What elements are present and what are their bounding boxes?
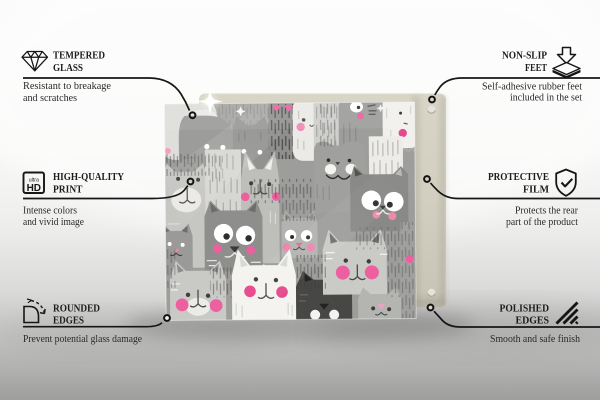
svg-text:Smooth and safe finish: Smooth and safe finish	[490, 334, 580, 345]
svg-text:Protects the rear: Protects the rear	[515, 206, 579, 217]
svg-text:Resistant to breakage: Resistant to breakage	[23, 81, 111, 92]
svg-text:Self-adhesive rubber feet: Self-adhesive rubber feet	[482, 82, 582, 93]
svg-text:part of the product: part of the product	[506, 217, 578, 228]
svg-text:TEMPERED: TEMPERED	[53, 50, 105, 62]
svg-text:HIGH-QUALITY: HIGH-QUALITY	[53, 171, 124, 183]
svg-text:EDGES: EDGES	[53, 315, 84, 327]
svg-text:GLASS: GLASS	[53, 62, 83, 74]
svg-text:FILM: FILM	[523, 183, 550, 195]
svg-text:FEET: FEET	[525, 62, 548, 74]
svg-text:PRINT: PRINT	[53, 183, 83, 195]
svg-text:ROUNDED: ROUNDED	[53, 302, 100, 314]
svg-text:POLISHED: POLISHED	[500, 302, 550, 314]
svg-text:PROTECTIVE: PROTECTIVE	[488, 171, 549, 183]
svg-text:Intense colors: Intense colors	[23, 206, 77, 217]
svg-text:EDGES: EDGES	[516, 315, 550, 327]
svg-text:included in the set: included in the set	[510, 93, 582, 104]
svg-text:Prevent potential glass damage: Prevent potential glass damage	[23, 334, 142, 345]
svg-text:NON-SLIP: NON-SLIP	[502, 50, 547, 62]
svg-text:and vivid image: and vivid image	[23, 217, 84, 228]
svg-text:and scratches: and scratches	[23, 93, 77, 104]
svg-text:HD: HD	[27, 183, 41, 194]
